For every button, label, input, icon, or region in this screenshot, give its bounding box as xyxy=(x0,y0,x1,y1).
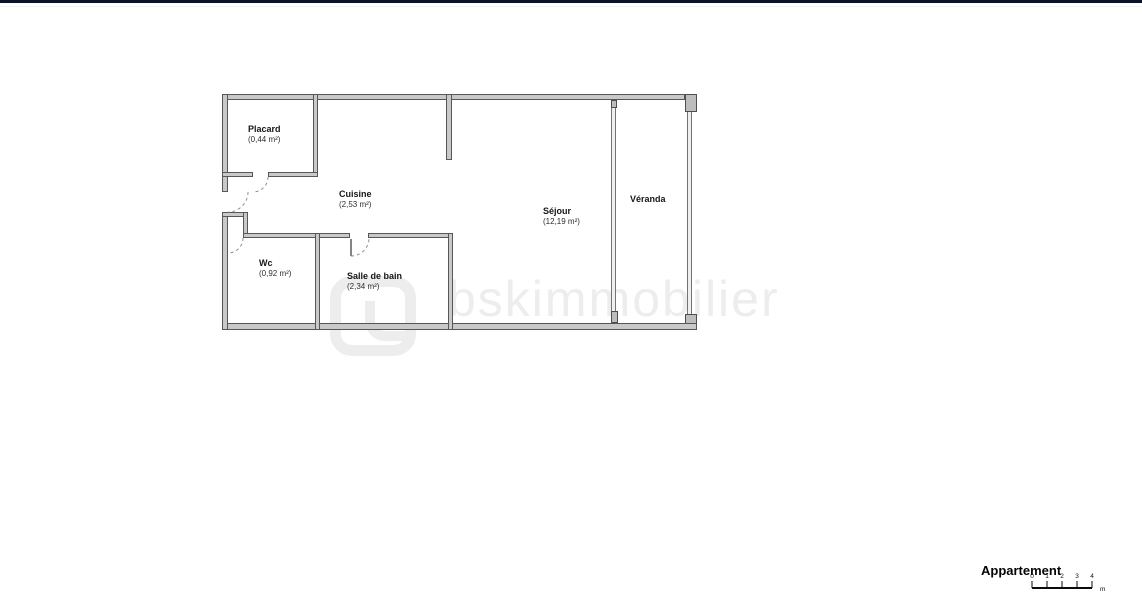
room-label-sejour: Séjour (12,19 m²) xyxy=(543,206,580,227)
room-name: Cuisine xyxy=(339,189,372,200)
scale-label-4: 4 xyxy=(1090,573,1094,580)
wall-bottom xyxy=(222,323,697,330)
scale-label-2: 2 xyxy=(1060,573,1064,580)
glazed-wall-veranda xyxy=(611,108,616,311)
wall-placard-bottom-left xyxy=(222,172,253,177)
room-label-placard: Placard (0,44 m²) xyxy=(248,124,281,145)
door-swings xyxy=(222,94,697,330)
scale-label-0: 0 xyxy=(1030,573,1034,580)
scale-label-3: 3 xyxy=(1075,573,1079,580)
wall-wc-right xyxy=(315,233,320,330)
room-label-salle-de-bain: Salle de bain (2,34 m²) xyxy=(347,271,402,292)
veranda-post-top xyxy=(611,100,617,108)
scale-label-1: 1 xyxy=(1045,573,1049,580)
room-area: (12,19 m²) xyxy=(543,217,580,227)
wall-left-upper xyxy=(222,94,228,192)
floor-plan: Placard (0,44 m²) Cuisine (2,53 m²) Wc (… xyxy=(222,94,697,330)
room-name: Séjour xyxy=(543,206,580,217)
room-name: Wc xyxy=(259,258,291,269)
room-label-veranda: Véranda xyxy=(630,194,666,205)
wall-entry-stub xyxy=(222,212,245,217)
scale-bar: 0 1 2 3 4 m xyxy=(1026,572,1112,598)
wall-placard-bottom-right xyxy=(268,172,318,177)
wall-kitchen-partition xyxy=(446,94,452,160)
room-name: Véranda xyxy=(630,194,666,205)
room-area: (2,53 m²) xyxy=(339,200,372,210)
entrance-door-arc xyxy=(228,192,248,212)
corner-post-top-right xyxy=(685,94,697,112)
wall-left-lower xyxy=(222,212,228,330)
scale-bar-graphic xyxy=(1026,572,1112,598)
veranda-post-bottom xyxy=(611,311,618,323)
bathroom-door-arc xyxy=(351,239,369,256)
room-name: Salle de bain xyxy=(347,271,402,282)
room-area: (0,44 m²) xyxy=(248,135,281,145)
room-name: Placard xyxy=(248,124,281,135)
room-label-cuisine: Cuisine (2,53 m²) xyxy=(339,189,372,210)
room-area: (0,92 m²) xyxy=(259,269,291,279)
wall-placard-right xyxy=(313,94,318,177)
scale-unit: m xyxy=(1100,586,1105,593)
placard-door-arc xyxy=(253,177,268,192)
room-label-wc: Wc (0,92 m²) xyxy=(259,258,291,279)
page: bskimmobilier xyxy=(0,0,1142,602)
wall-bathroom-right xyxy=(448,233,453,330)
glazed-wall-right xyxy=(687,112,692,314)
wall-wc-top xyxy=(243,233,350,238)
room-area: (2,34 m²) xyxy=(347,282,402,292)
wc-door-arc xyxy=(228,238,243,253)
wall-bathroom-top xyxy=(368,233,453,238)
